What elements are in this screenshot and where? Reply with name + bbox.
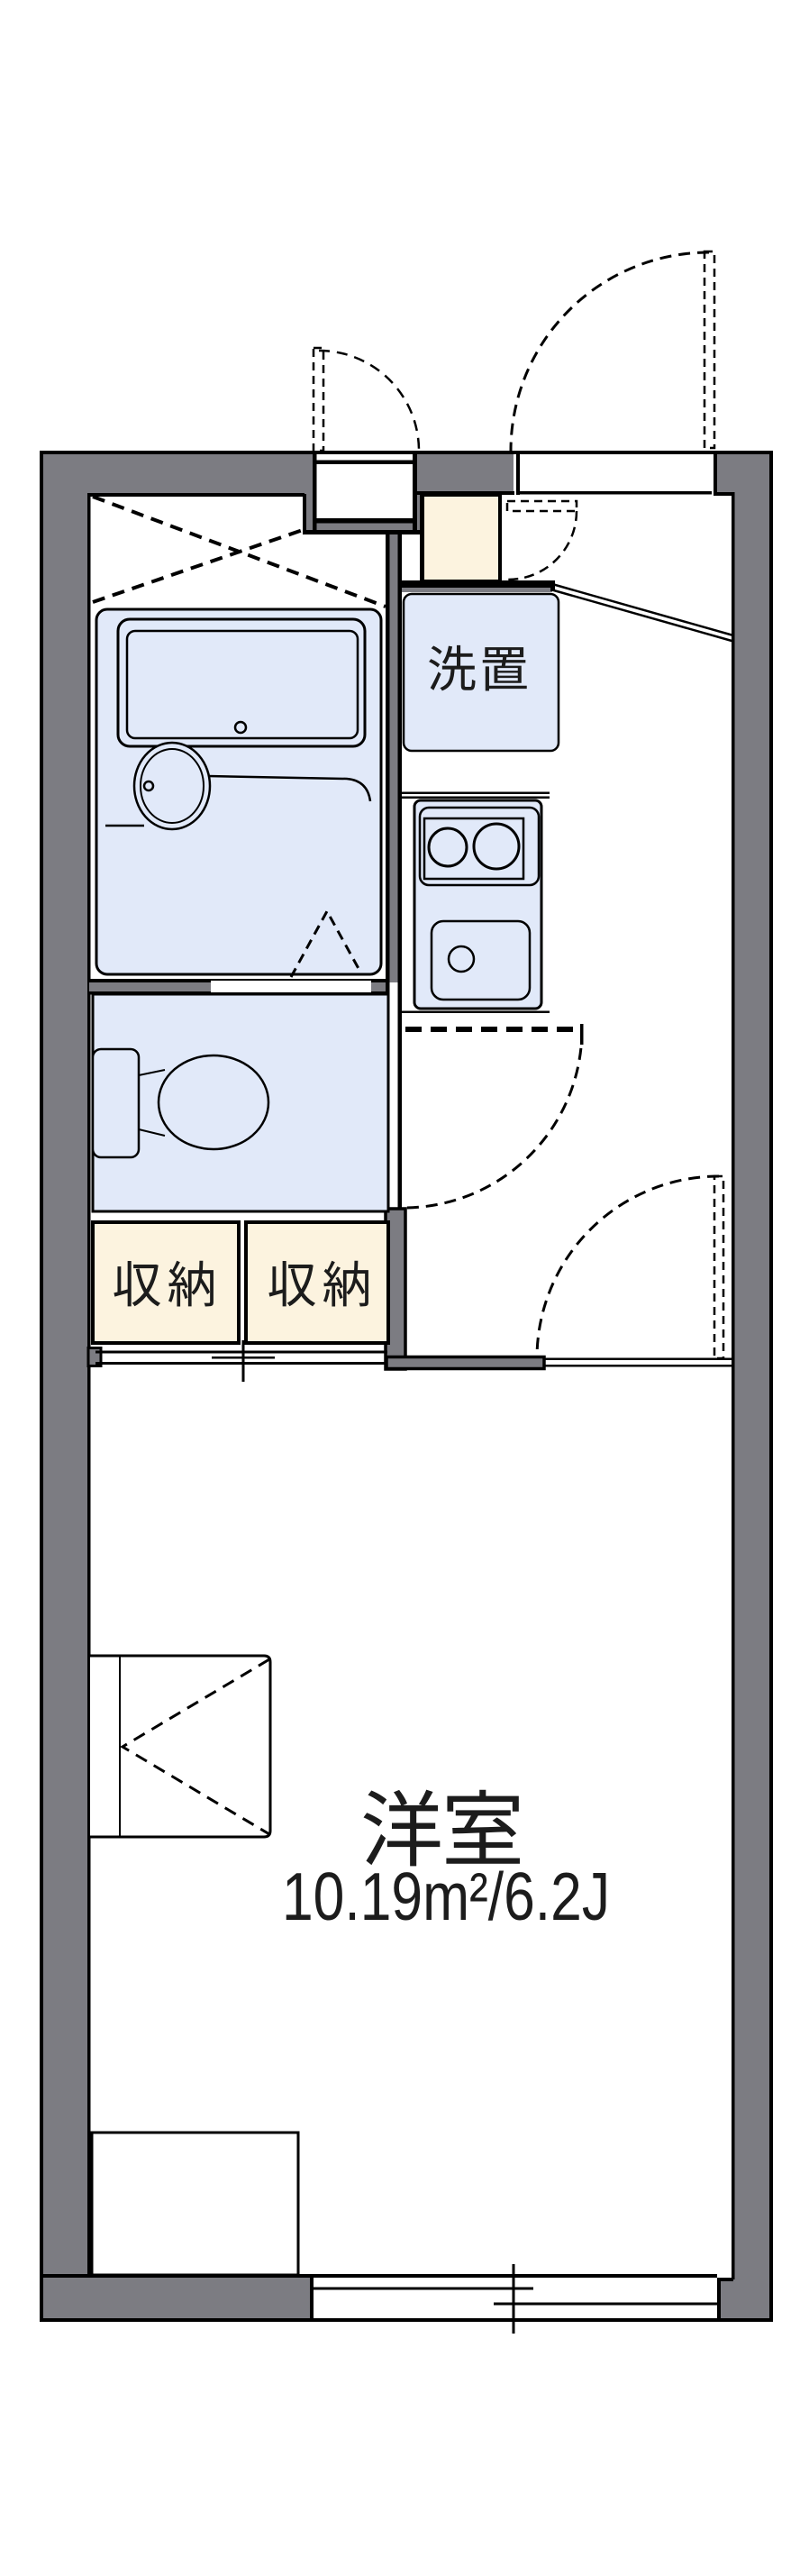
svg-text:10.19m²/6.2J: 10.19m²/6.2J (282, 1859, 610, 1934)
